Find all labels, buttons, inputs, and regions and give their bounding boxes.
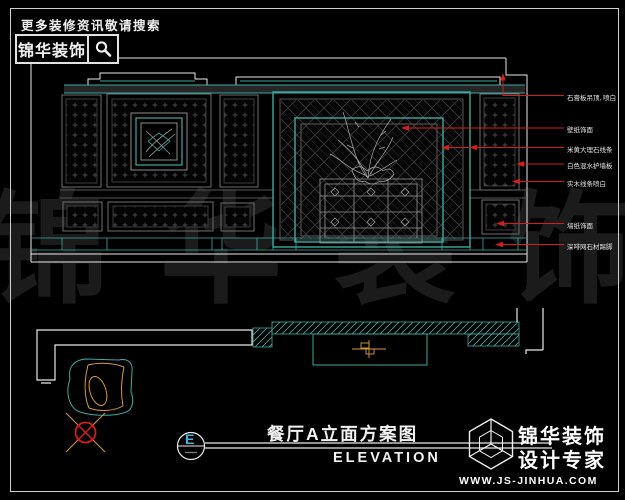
crown-molding bbox=[64, 73, 525, 93]
plan-wall-corner bbox=[517, 308, 543, 354]
material-label: 实木线条喷白 bbox=[567, 178, 606, 188]
material-label: 石膏板吊顶, 喷白 bbox=[567, 92, 616, 102]
drawing-subtitle: ELEVATION bbox=[333, 450, 441, 466]
plan-sideboard bbox=[313, 334, 427, 365]
feature-wall bbox=[273, 92, 470, 247]
footer-tagline: 设计专家 bbox=[518, 444, 606, 473]
elevation-drawing bbox=[31, 58, 527, 262]
material-label: 深啡网石材踢脚 bbox=[567, 241, 613, 251]
wall-panels-right bbox=[480, 94, 519, 234]
wall-panels-upper bbox=[62, 94, 258, 187]
plan-armchair bbox=[68, 359, 133, 415]
center-ornament bbox=[131, 113, 187, 170]
plan-column-symbol bbox=[66, 413, 105, 452]
search-box[interactable]: 锦华装饰 bbox=[15, 34, 119, 64]
drawing-title: 餐厅A立面方案图 bbox=[267, 421, 418, 446]
brand-name: 锦华装饰 bbox=[17, 36, 87, 62]
material-label: 壁纸饰面 bbox=[567, 124, 593, 134]
cad-sheet: 锦华装饰 bbox=[0, 0, 625, 500]
promo-tagline: 更多装修资讯敬请搜索 bbox=[21, 15, 161, 34]
wall-panels-wainscot bbox=[63, 202, 254, 231]
isometric-cube-icon bbox=[470, 419, 513, 469]
footer-website: WWW.JS-JINHUA.COM bbox=[459, 475, 598, 487]
elevation-marker-letter: E bbox=[185, 431, 194, 447]
magnifier-icon[interactable] bbox=[89, 36, 117, 62]
material-label: 墙纸饰面 bbox=[567, 220, 593, 230]
material-label: 白色混水护墙板 bbox=[567, 160, 613, 170]
plan-center-symbol bbox=[352, 340, 386, 358]
material-label: 米黄大理石线条 bbox=[567, 144, 613, 154]
